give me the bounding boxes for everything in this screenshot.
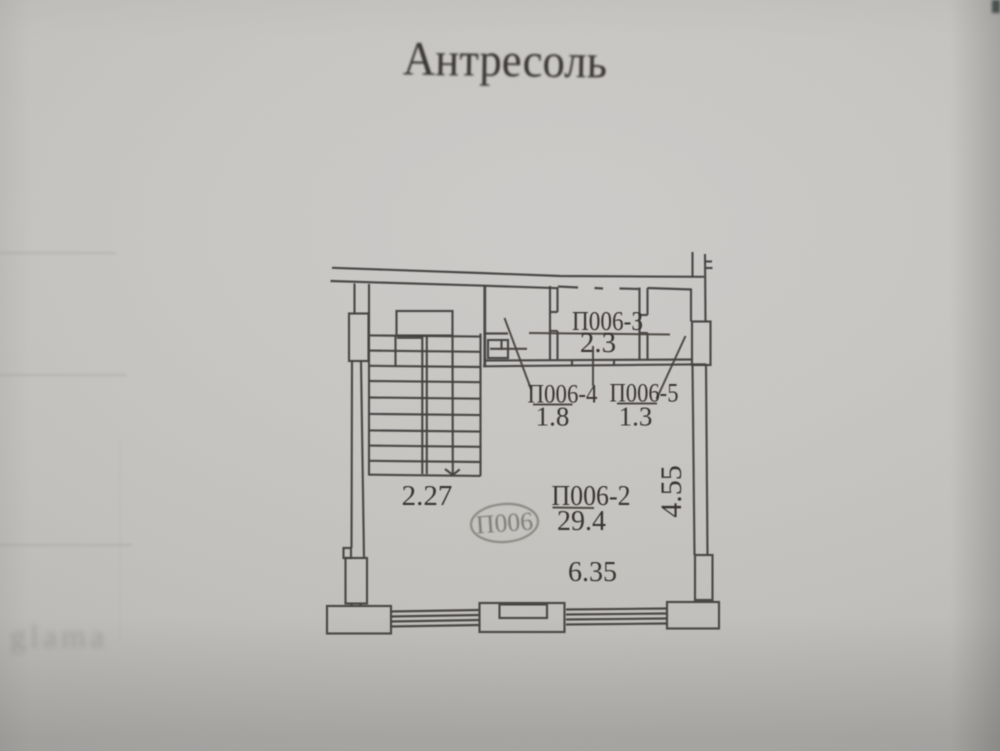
- svg-text:1.3: 1.3: [619, 402, 653, 432]
- svg-text:1.8: 1.8: [536, 402, 570, 432]
- svg-text:6.35: 6.35: [568, 557, 617, 588]
- svg-text:П006: П006: [475, 507, 534, 540]
- svg-text:29.4: 29.4: [557, 506, 606, 537]
- svg-text:2.27: 2.27: [402, 480, 453, 512]
- svg-text:4.55: 4.55: [655, 465, 688, 518]
- svg-text:2.3: 2.3: [580, 327, 616, 359]
- svg-text:Антресоль: Антресоль: [403, 32, 608, 88]
